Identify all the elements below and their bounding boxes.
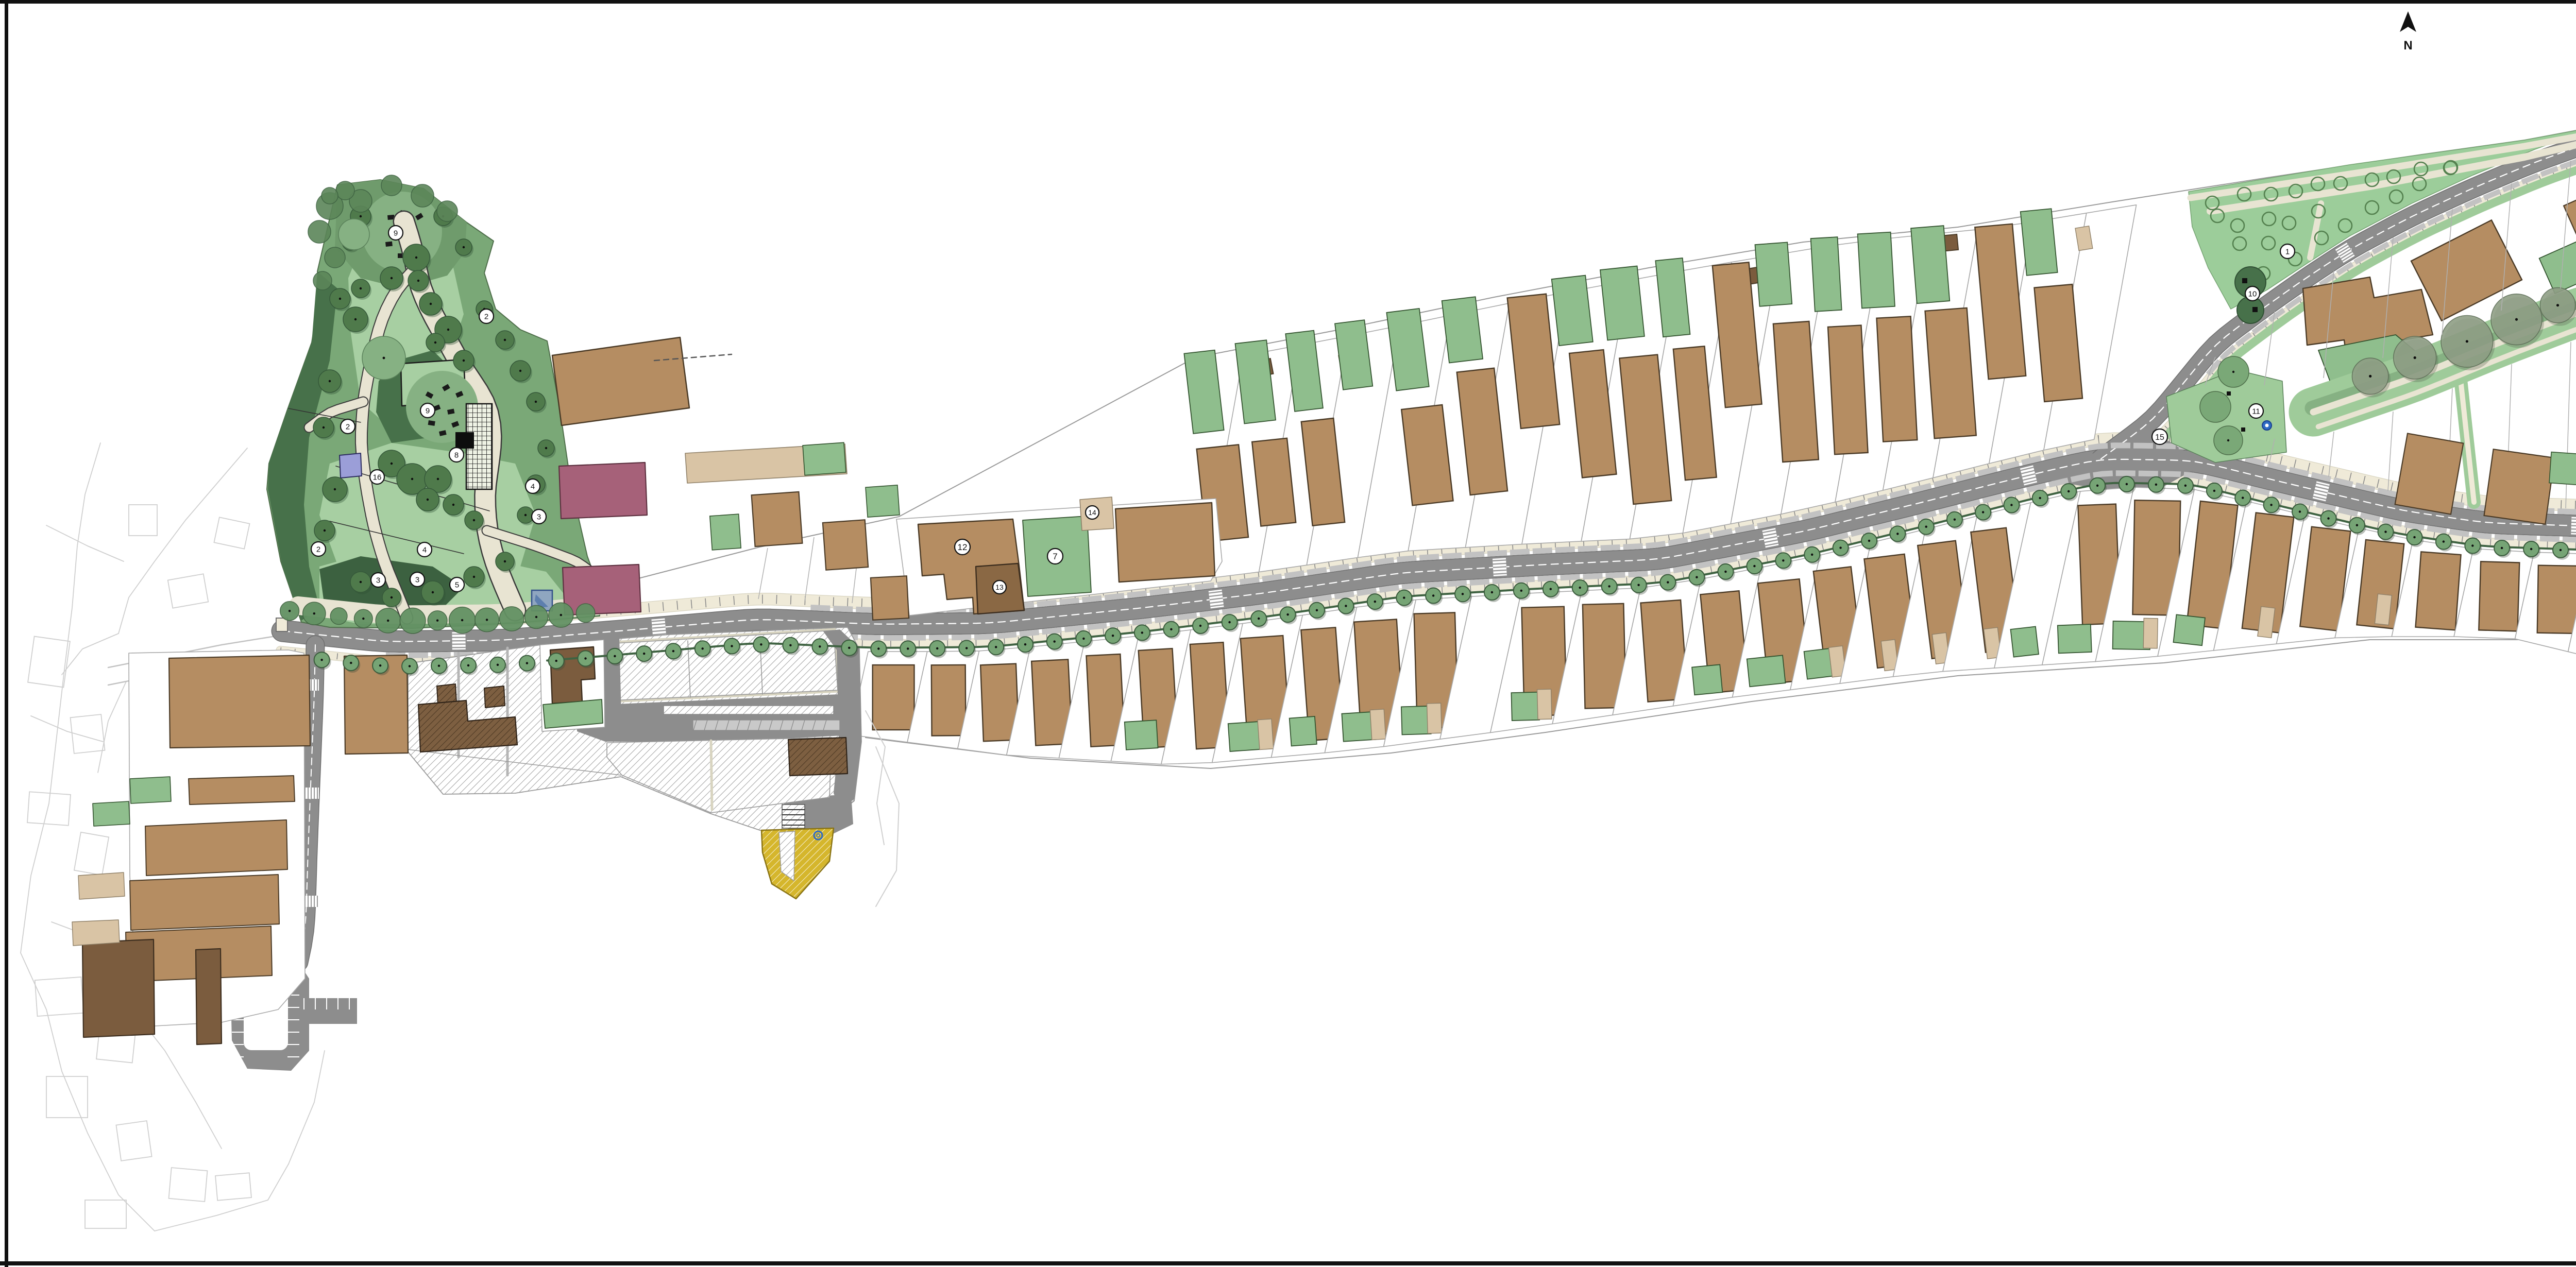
svg-text:7: 7: [1053, 552, 1057, 561]
svg-text:14: 14: [1088, 508, 1096, 517]
svg-text:15: 15: [2155, 433, 2164, 442]
svg-text:9: 9: [426, 406, 430, 415]
svg-text:2: 2: [316, 545, 320, 554]
svg-text:12: 12: [958, 542, 968, 552]
svg-text:5: 5: [455, 580, 459, 589]
svg-text:10: 10: [2248, 289, 2257, 298]
svg-text:N: N: [2403, 39, 2412, 53]
svg-text:9: 9: [394, 229, 398, 237]
svg-text:16: 16: [373, 473, 382, 482]
svg-text:2: 2: [484, 312, 488, 321]
svg-text:4: 4: [422, 545, 427, 554]
svg-text:3: 3: [415, 575, 419, 584]
svg-text:3: 3: [376, 576, 380, 585]
svg-text:3: 3: [537, 512, 541, 521]
svg-text:1: 1: [2285, 247, 2290, 256]
svg-text:2: 2: [346, 422, 350, 431]
svg-text:4: 4: [531, 482, 535, 491]
svg-text:11: 11: [2252, 407, 2260, 416]
svg-text:8: 8: [454, 451, 459, 459]
svg-text:13: 13: [995, 583, 1004, 591]
